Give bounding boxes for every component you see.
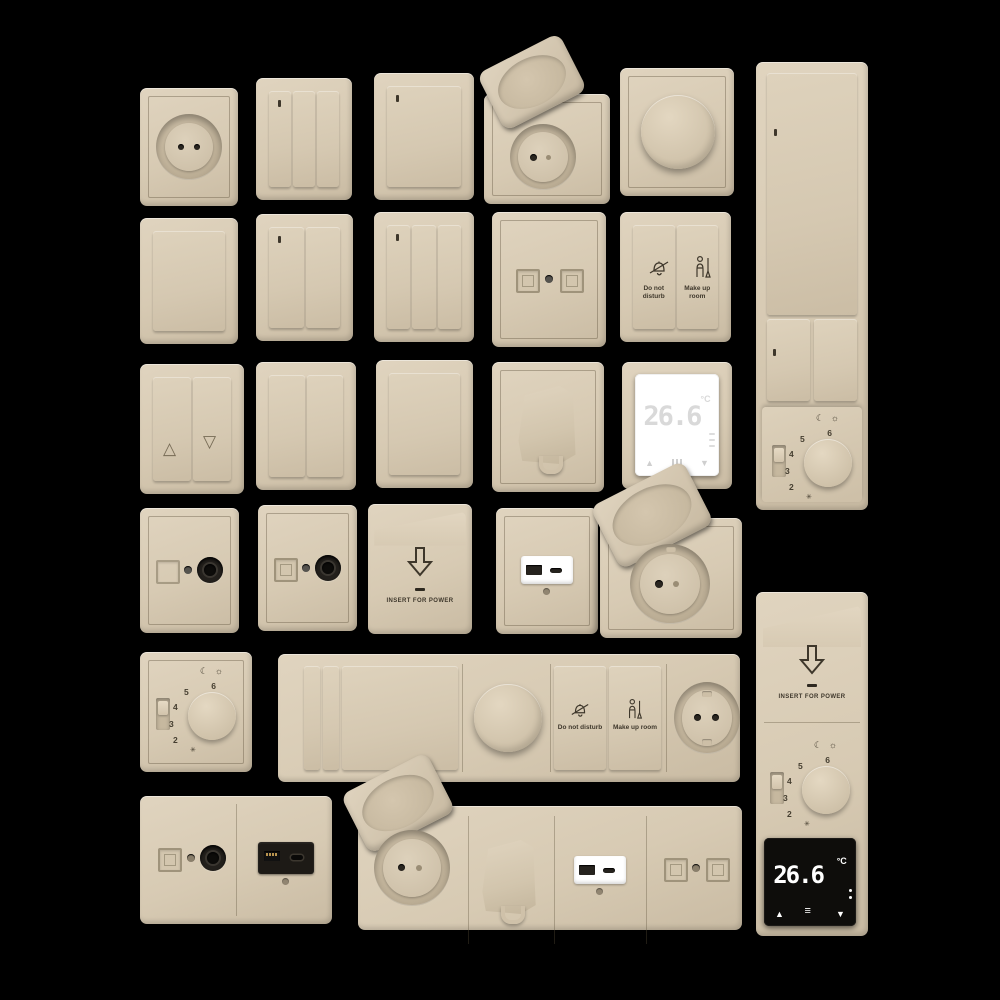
socket-eu-round	[140, 88, 238, 206]
usb-c-port	[550, 568, 562, 573]
outlet-tv-coax-b	[258, 505, 357, 631]
divider	[764, 722, 860, 723]
socket-pin-hole	[398, 864, 405, 871]
panel-vertical-top: ☾ ☼ 6 5 4 3 2 ✳	[756, 62, 868, 510]
temperature-knob	[188, 692, 236, 740]
dial-number: 3	[783, 793, 788, 803]
down-arrow-outline-icon	[406, 546, 434, 578]
strip-horizontal-mixed: Do not disturb Make up room	[278, 654, 740, 782]
sun-icon: ☼	[215, 666, 223, 676]
outlet-tv-coax-a	[140, 508, 239, 633]
insert-for-power-label: INSERT FOR POWER	[756, 694, 868, 700]
screw	[282, 878, 289, 885]
status-slot	[415, 588, 425, 591]
frost-icon: ✳	[190, 746, 196, 754]
dial-number: 4	[787, 776, 792, 786]
data-port	[274, 558, 298, 582]
outlet-cable-exit	[492, 362, 604, 492]
earth-clip	[702, 739, 712, 745]
housekeeping-icon	[625, 698, 645, 720]
dial-number: 5	[800, 434, 805, 444]
dial-number: 2	[787, 809, 792, 819]
switch-1-gang-blank	[140, 218, 238, 344]
dial-number: 6	[825, 755, 830, 765]
rocker-half-right	[814, 319, 857, 401]
temperature-value: 26.6	[643, 401, 700, 432]
usb-insert-black	[258, 842, 314, 874]
usb-c-port	[291, 855, 303, 860]
divider	[462, 664, 463, 772]
sun-icon: ☼	[831, 413, 839, 423]
dial-number: 2	[173, 735, 178, 745]
socket-center-pip	[546, 155, 551, 160]
do-not-disturb-button: Do not disturb	[633, 225, 675, 329]
center-dot	[184, 566, 192, 574]
rocker-large	[767, 73, 857, 315]
data-port	[158, 848, 182, 872]
switch-3-gang	[256, 78, 352, 200]
temperature-value: 26.6	[773, 861, 823, 889]
indicator-mark	[396, 95, 399, 102]
center-dot	[187, 854, 195, 862]
coax-connector	[197, 557, 223, 583]
divider	[646, 816, 647, 944]
mode-slider	[772, 445, 786, 477]
bell-slash-icon	[647, 257, 671, 279]
switch-service-dnd-mur: Do not disturb Make up room	[620, 212, 731, 342]
socket-disc	[518, 132, 568, 182]
down-arrow-button: ▼	[836, 909, 845, 919]
dial-number: 5	[798, 761, 803, 771]
make-up-room-label: Make up room	[609, 724, 661, 732]
make-up-room-label: Make up room	[677, 285, 719, 301]
divider	[666, 664, 667, 772]
socket-disc	[165, 123, 213, 171]
mode-slider	[770, 772, 784, 804]
vent-bar	[709, 445, 715, 447]
socket-center-pip	[673, 581, 679, 587]
thermostat-dial: ☾ ☼ 6 5 4 3 2 ✳	[772, 413, 852, 501]
socket-disc	[640, 554, 700, 614]
socket-flip-lid-large	[600, 486, 742, 638]
dot	[849, 889, 852, 892]
socket-pin-hole	[712, 714, 719, 721]
data-port	[156, 560, 180, 584]
dot	[849, 896, 852, 899]
dial-number: 6	[827, 428, 832, 438]
down-arrow-outline-icon	[798, 644, 826, 676]
moon-icon: ☾	[200, 666, 208, 677]
socket-pin-hole	[655, 580, 663, 588]
rocker-3	[438, 225, 461, 329]
bell-slash-icon	[569, 700, 591, 720]
earth-clip	[666, 546, 676, 552]
mode-slider	[156, 698, 170, 730]
do-not-disturb-button: Do not disturb	[554, 666, 606, 770]
usb-a-port	[579, 865, 595, 875]
divider	[550, 664, 551, 772]
port-inner	[566, 275, 578, 287]
usb-a-port	[264, 851, 280, 861]
dial-number: 4	[789, 449, 794, 459]
switch-3-gang-b	[374, 212, 474, 342]
do-not-disturb-label: Do not disturb	[554, 724, 606, 732]
usb-insert	[574, 856, 626, 884]
frost-icon: ✳	[806, 493, 812, 501]
coax-connector	[200, 845, 226, 871]
earth-clip	[702, 691, 712, 697]
slider-thumb	[158, 701, 168, 715]
do-not-disturb-label: Do not disturb	[633, 285, 675, 301]
down-arrow-button: ▼	[700, 458, 709, 468]
cable-loop	[501, 906, 525, 924]
rocker	[387, 86, 461, 187]
switch-blind-control: △ ▽	[140, 364, 244, 494]
port-inner	[712, 864, 724, 876]
cable-cover	[516, 386, 578, 464]
temperature-knob	[802, 766, 850, 814]
up-arrow-button: ▲	[775, 909, 784, 919]
indicator-mark	[773, 349, 776, 356]
screw	[543, 588, 550, 595]
center-dot	[302, 564, 310, 572]
thermostat-dial: ☾ ☼ 6 5 4 3 2 ✳	[156, 666, 236, 754]
dial-number: 4	[173, 702, 178, 712]
dial-number: 6	[211, 681, 216, 691]
socket-disc	[682, 690, 732, 746]
socket-center-pip	[416, 865, 422, 871]
indicator-mark	[278, 100, 281, 107]
rocker-2	[293, 91, 315, 187]
status-slot	[807, 684, 817, 687]
rocker-1	[387, 225, 410, 329]
thermostat-dial-subplate: ☾ ☼ 6 5 4 3 2 ✳	[762, 407, 862, 502]
socket-pin-hole	[194, 144, 200, 150]
indicator-mark	[396, 234, 399, 241]
socket-flip-lid	[484, 52, 610, 204]
dimmer-rotary	[620, 68, 734, 196]
dial-number: 3	[785, 466, 790, 476]
center-dot	[545, 275, 553, 283]
rocker-2	[412, 225, 435, 329]
rocker-3	[317, 91, 339, 187]
down-triangle-icon: ▽	[203, 432, 216, 452]
rocker-half-left	[767, 319, 810, 401]
outlet-dual-data	[492, 212, 606, 347]
sun-icon: ☼	[829, 740, 837, 750]
rocker-2	[307, 375, 343, 477]
narrow-button-2	[323, 666, 339, 770]
menu-icon: ≡	[804, 905, 810, 917]
temperature-unit: °C	[837, 856, 847, 866]
rocker	[153, 231, 225, 331]
slider-thumb	[772, 775, 782, 789]
dimmer-knob	[641, 95, 715, 169]
make-up-room-button: Make up room	[677, 225, 719, 329]
port-inner	[164, 854, 176, 866]
thermostat-dial: ☾ ☼ 6 5 4 3 2 ✳	[770, 740, 850, 828]
make-up-room-button: Make up room	[609, 666, 661, 770]
blind-up-button: △	[153, 377, 191, 481]
divider	[236, 804, 237, 916]
coax-connector	[315, 555, 341, 581]
rocker-1	[269, 91, 291, 187]
coax-inner	[207, 852, 219, 864]
rocker-2	[306, 227, 341, 328]
switch-2-gang	[256, 214, 353, 341]
side-vents	[709, 433, 715, 447]
socket-pin-hole	[530, 154, 537, 161]
indicator-mark	[278, 236, 281, 243]
temperature-unit: °C	[701, 394, 711, 404]
thermostat-dial-plate: ☾ ☼ 6 5 4 3 2 ✳	[140, 652, 252, 772]
thermostat-display: 26.6 °C ▲ ▼	[635, 374, 719, 476]
up-triangle-icon: △	[163, 439, 176, 459]
vent-bar	[709, 439, 715, 441]
switch-1-gang	[374, 73, 474, 200]
divider	[468, 816, 469, 944]
socket-disc	[383, 839, 441, 897]
dimmer-knob	[474, 684, 542, 752]
data-port-right	[706, 858, 730, 882]
cable-cover	[480, 840, 538, 914]
port-inner	[280, 564, 292, 576]
vent-bar	[709, 433, 715, 435]
usb-insert	[521, 556, 573, 584]
dial-number: 5	[184, 687, 189, 697]
rocker	[389, 373, 460, 475]
slider-thumb	[774, 448, 784, 462]
switch-2-gang-blank	[256, 362, 356, 490]
wide-rocker	[342, 666, 458, 770]
moon-icon: ☾	[816, 413, 824, 424]
moon-icon: ☾	[814, 740, 822, 751]
side-dots	[849, 889, 852, 899]
data-port-left	[664, 858, 688, 882]
rocker-1	[269, 227, 304, 328]
cable-loop	[539, 456, 563, 474]
data-port-right	[560, 269, 584, 293]
blind-down-button: ▽	[193, 377, 231, 481]
outlet-coax-usb-double	[140, 796, 332, 924]
socket-pin-hole	[694, 714, 701, 721]
screw	[596, 888, 603, 895]
usb-a-port	[526, 565, 542, 575]
socket-pin-hole	[178, 144, 184, 150]
strip-horizontal-sockets	[358, 778, 742, 930]
port-inner	[522, 275, 534, 287]
usb-c-port	[603, 868, 615, 873]
center-dot	[692, 864, 700, 872]
frost-icon: ✳	[804, 820, 810, 828]
coax-inner	[204, 564, 216, 576]
coax-inner	[322, 562, 334, 574]
rocker-1	[269, 375, 305, 477]
panel-vertical-bottom: INSERT FOR POWER ☾ ☼ 6 5 4 3 2 ✳ 26.6 °C…	[756, 592, 868, 936]
dial-number: 2	[789, 482, 794, 492]
insert-for-power-label: INSERT FOR POWER	[368, 598, 472, 604]
outlet-usb-white	[496, 508, 598, 634]
switch-1-gang-blank-b	[376, 360, 473, 488]
divider	[554, 816, 555, 944]
housekeeping-icon	[692, 255, 714, 279]
indicator-mark	[774, 129, 777, 136]
product-render-stage: ☾ ☼ 6 5 4 3 2 ✳	[0, 0, 1000, 1000]
temperature-knob	[804, 439, 852, 487]
dial-number: 3	[169, 719, 174, 729]
up-arrow-button: ▲	[645, 458, 654, 468]
narrow-button-1	[304, 666, 320, 770]
key-card-holder: INSERT FOR POWER	[368, 504, 472, 634]
port-inner	[670, 864, 682, 876]
thermostat-display-black: 26.6 °C ▲ ≡ ▼	[764, 838, 856, 926]
data-port-left	[516, 269, 540, 293]
